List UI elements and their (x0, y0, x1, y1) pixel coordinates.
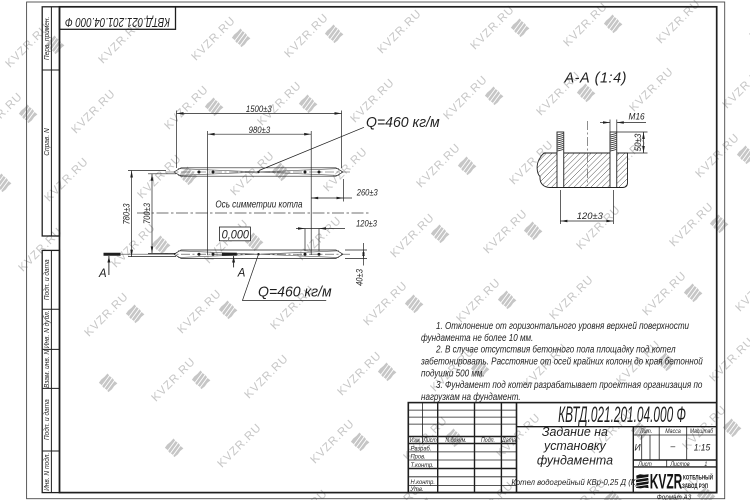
svg-text:Инв. N дубл.: Инв. N дубл. (43, 310, 51, 348)
svg-text:Лист: Лист (422, 438, 437, 444)
svg-text:Q=460 кг/м: Q=460 кг/м (258, 284, 332, 300)
svg-text:700±3: 700±3 (141, 203, 152, 224)
svg-text:KVZR.RU: KVZR.RU (136, 153, 185, 202)
svg-text:Т.контр.: Т.контр. (411, 461, 434, 469)
svg-text:Масса: Масса (665, 429, 681, 435)
svg-text:2. В случае отсутствия бетонно: 2. В случае отсутствия бетонного пола пл… (435, 344, 675, 355)
svg-text:KVZR.RU: KVZR.RU (203, 218, 252, 267)
svg-text:А: А (98, 267, 107, 280)
svg-text:Задание на: Задание на (542, 423, 608, 438)
svg-text:KVZR.RU: KVZR.RU (641, 270, 690, 319)
svg-text:Разраб.: Разраб. (411, 444, 432, 453)
svg-text:ЗАВОД РЭП: ЗАВОД РЭП (682, 483, 708, 490)
svg-text:KVZR.RU: KVZR.RU (362, 280, 411, 329)
svg-text:KVZR.RU: KVZR.RU (83, 291, 132, 340)
svg-text:Изм.: Изм. (410, 438, 421, 444)
svg-text:Лист: Лист (637, 462, 652, 468)
svg-text:Котел водогрейный КВр-0,25 Д (: Котел водогрейный КВр-0,25 Д (К) (511, 478, 638, 487)
svg-text:50±3: 50±3 (632, 134, 643, 152)
svg-text:KVZR.RU: KVZR.RU (176, 288, 225, 337)
svg-text:Пров.: Пров. (411, 453, 426, 461)
svg-text:–: – (670, 441, 677, 452)
svg-text:Подп. и дата: Подп. и дата (43, 399, 51, 440)
svg-text:KVZR.RU: KVZR.RU (243, 353, 292, 402)
svg-text:KVZR.RU: KVZR.RU (110, 222, 159, 271)
svg-text:нагрузкам на фундамент.: нагрузкам на фундамент. (421, 391, 521, 402)
svg-text:Подп.: Подп. (481, 438, 495, 444)
svg-text:Перв. примен.: Перв. примен. (44, 17, 51, 61)
svg-text:KVZR.RU: KVZR.RU (216, 422, 265, 471)
svg-text:А-А (1:4): А-А (1:4) (563, 71, 627, 87)
svg-text:KVZR.RU: KVZR.RU (482, 208, 531, 257)
svg-text:подушки 500 мм.: подушки 500 мм. (421, 368, 485, 379)
svg-text:Q=460 кг/м: Q=460 кг/м (366, 115, 440, 131)
svg-text:М16: М16 (629, 111, 645, 122)
svg-text:KVZR.RU: KVZR.RU (469, 4, 518, 53)
svg-text:Лит.: Лит. (639, 429, 652, 435)
svg-text:Взам. инв. N: Взам. инв. N (44, 350, 51, 388)
svg-text:3. Фундамент под котел разраба: 3. Фундамент под котел разрабатывает про… (436, 379, 702, 390)
svg-text:KVZR.RU: KVZR.RU (336, 350, 385, 399)
svg-text:KVZR.RU: KVZR.RU (455, 277, 504, 326)
svg-text:1500±3: 1500±3 (246, 103, 272, 114)
svg-text:KVZR.RU: KVZR.RU (376, 8, 425, 57)
svg-text:А: А (237, 266, 246, 279)
svg-text:КВТД.021.201.04.000 Ф: КВТД.021.201.04.000 Ф (65, 15, 170, 28)
svg-text:120±3: 120±3 (577, 210, 604, 221)
svg-text:Н.контр.: Н.контр. (411, 478, 435, 486)
svg-text:Ось симметрии котла: Ось симметрии котла (215, 199, 302, 210)
svg-text:KVZR.RU: KVZR.RU (282, 488, 331, 500)
svg-text:N докум.: N докум. (445, 438, 466, 444)
svg-text:1: 1 (704, 462, 707, 468)
svg-text:KVZR.RU: KVZR.RU (562, 1, 611, 50)
svg-text:KVZR: KVZR (650, 470, 683, 493)
svg-text:фундамента: фундамента (537, 452, 613, 467)
svg-text:фундамента не более 10 мм.: фундамента не более 10 мм. (421, 332, 533, 343)
svg-text:KVZR.RU: KVZR.RU (734, 266, 750, 315)
svg-text:забетонировать. Расстояние от: забетонировать. Расстояние от осей крайн… (420, 356, 703, 367)
svg-text:KVZR.RU: KVZR.RU (43, 156, 92, 205)
svg-text:KVZR.RU: KVZR.RU (708, 336, 750, 385)
svg-text:KVZR.RU: KVZR.RU (283, 12, 332, 61)
svg-text:KVZR.RU: KVZR.RU (415, 142, 464, 191)
svg-text:Дата: Дата (501, 438, 516, 444)
svg-text:Инв. N подл.: Инв. N подл. (43, 453, 51, 491)
svg-text:установку: установку (543, 438, 607, 453)
svg-text:1. Отклонение от горизонтально: 1. Отклонение от горизонтального уровня … (436, 320, 689, 331)
svg-text:KVZR.RU: KVZR.RU (628, 66, 677, 115)
svg-text:KVZR.RU: KVZR.RU (668, 201, 717, 250)
svg-text:KVZR.RU: KVZR.RU (309, 418, 358, 467)
svg-text:KVZR.RU: KVZR.RU (150, 356, 199, 405)
svg-text:KVZR.RU: KVZR.RU (442, 74, 491, 123)
svg-text:KVZR.RU: KVZR.RU (548, 274, 597, 323)
svg-text:0,000: 0,000 (222, 229, 250, 241)
svg-text:KVZR.RU: KVZR.RU (389, 212, 438, 261)
svg-text:260±3: 260±3 (356, 187, 378, 198)
svg-text:И: И (634, 442, 641, 453)
svg-text:KVZR.RU: KVZR.RU (163, 84, 212, 133)
svg-text:КОТЕЛЬНЫЙ: КОТЕЛЬНЫЙ (683, 473, 713, 482)
svg-text:980±3: 980±3 (249, 124, 271, 135)
svg-text:KVZR.RU: KVZR.RU (747, 470, 750, 500)
svg-text:Утв.: Утв. (410, 486, 424, 494)
svg-text:Листов: Листов (669, 462, 689, 468)
svg-text:Подп. и дата: Подп. и дата (43, 259, 51, 300)
svg-text:KVZR.RU: KVZR.RU (190, 15, 239, 64)
svg-text:780±3: 780±3 (121, 203, 132, 224)
svg-text:Справ. N: Справ. N (44, 128, 51, 156)
svg-text:40±3: 40±3 (354, 269, 365, 286)
svg-text:120±3: 120±3 (356, 218, 377, 229)
svg-text:Формат А3: Формат А3 (657, 494, 692, 500)
svg-text:KVZR.RU: KVZR.RU (70, 88, 119, 137)
svg-text:1:15: 1:15 (694, 442, 712, 453)
svg-text:KVZR.RU: KVZR.RU (229, 150, 278, 199)
svg-text:KVZR.RU: KVZR.RU (694, 132, 743, 181)
svg-text:Масштаб: Масштаб (690, 429, 714, 436)
